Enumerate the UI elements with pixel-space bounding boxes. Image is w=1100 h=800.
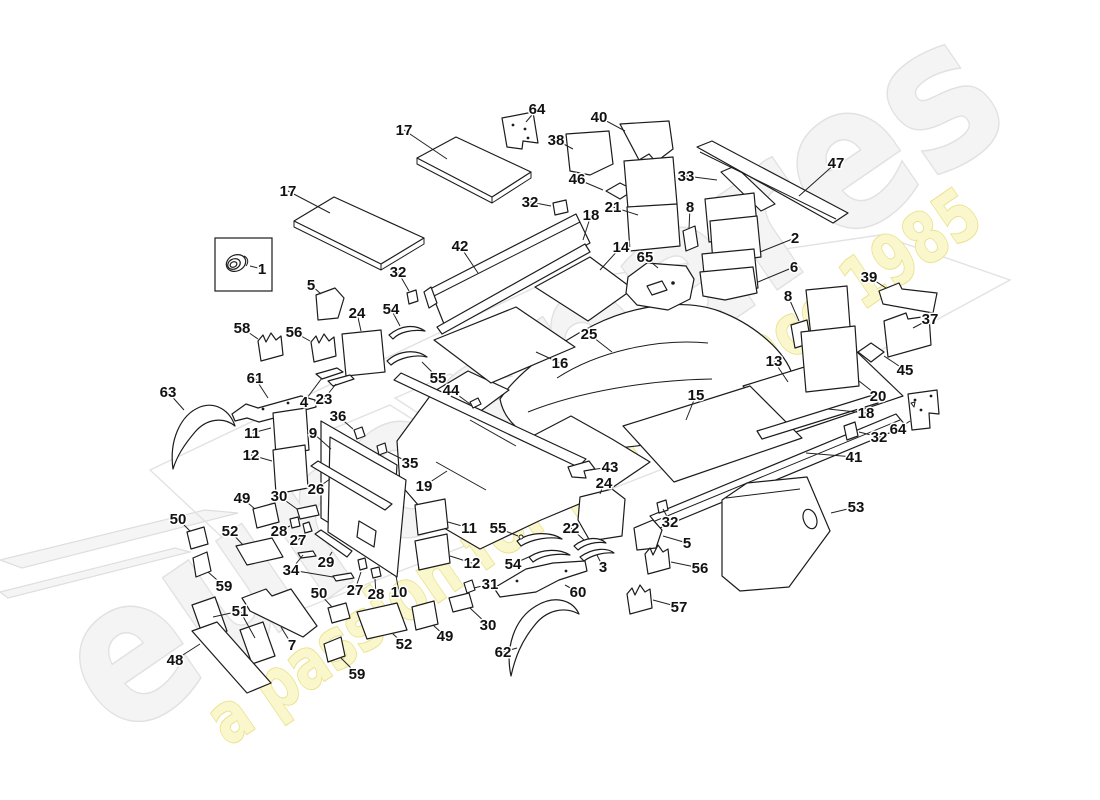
callout-58: 58 [234,320,258,339]
part-number-label: 32 [871,429,888,446]
part-number-label: 32 [662,514,679,531]
part-number-label: 9 [309,425,317,442]
part-24-panel-upper [342,330,385,376]
part-number-label: 27 [347,582,364,599]
part-22-strip [574,538,606,550]
part-12-pad-right [415,534,450,570]
part-number-label: 7 [288,637,296,654]
part-number-label: 5 [683,535,691,552]
part-number-label: 17 [280,183,297,200]
part-number-label: 51 [232,603,249,620]
part-number-label: 65 [637,249,654,266]
callout-60: 60 [565,584,586,601]
callout-32: 32 [522,194,551,211]
part-27-clip-lower [358,558,367,570]
part-number-label: 25 [581,326,598,343]
part-number-label: 58 [234,320,251,337]
part-number-label: 30 [271,488,288,505]
part-number-label: 17 [396,122,413,139]
part-32-clip-lower [657,500,668,513]
part-number-label: 46 [569,171,586,188]
callout-29: 29 [318,552,335,571]
part-6-panel [700,267,757,300]
part-number-label: 28 [271,523,288,540]
part-number-label: 62 [495,644,512,661]
part-number-label: 30 [480,617,497,634]
callout-27: 27 [290,532,307,549]
part-number-label: 64 [529,101,546,118]
part-number-label: 49 [234,490,251,507]
part-number-label: 11 [461,520,477,537]
part-57-clip [627,585,652,614]
callout-64: 64 [890,421,910,438]
callout-42: 42 [452,238,478,273]
part-number-label: 24 [596,475,613,492]
part-number-label: 27 [290,532,307,549]
callout-28: 28 [271,523,290,540]
part-number-label: 35 [402,455,419,472]
part-number-label: 40 [591,109,608,126]
callout-56: 56 [671,560,708,577]
part-number-label: 54 [383,301,400,318]
part-53-boot-panel [722,477,830,591]
callout-3: 3 [597,555,607,576]
part-number-label: 32 [522,194,539,211]
part-21-bulkhead-panels [624,157,680,251]
part-number-label: 5 [307,277,315,294]
part-number-label: 42 [452,238,469,255]
part-number-label: 22 [563,520,580,537]
callout-40: 40 [591,109,625,131]
part-number-label: 49 [437,628,454,645]
part-number-label: 12 [243,447,260,464]
callout-49: 49 [433,625,453,645]
part-number-label: 44 [443,382,460,399]
part-64-bracket-right [908,390,939,430]
part-number-label: 28 [368,586,385,603]
part-number-label: 24 [349,305,366,322]
part-number-label: 54 [505,556,522,573]
part-number-label: 4 [300,394,309,411]
part-number-label: 53 [848,499,865,516]
callout-32: 32 [390,264,409,291]
part-28-clip-lower [371,567,381,578]
part-number-label: 55 [490,520,507,537]
part-number-label: 23 [316,391,333,408]
part-62-wheelarch-liner [509,600,579,676]
part-number-label: 15 [688,387,705,404]
diagram-canvas: eurospares a passion for parts since 198… [0,0,1100,800]
callout-24: 24 [596,475,613,494]
part-number-label: 37 [922,311,939,328]
part-number-label: 47 [828,155,845,172]
part-number-label: 64 [890,421,907,438]
callout-5: 5 [307,277,321,294]
part-number-label: 43 [602,459,619,476]
part-number-label: 63 [160,384,177,401]
part-number-label: 14 [613,239,630,256]
part-24-panel-lower [578,489,625,541]
part-number-label: 48 [167,652,184,669]
part-number-label: 52 [396,636,413,653]
part-12-pad-left [273,445,308,494]
callout-54: 54 [383,301,400,326]
callout-61: 61 [247,370,268,398]
callout-17: 17 [396,122,447,159]
part-number-label: 52 [222,523,239,540]
callout-24: 24 [349,305,366,331]
part-11-pad-right [415,499,448,535]
part-number-label: 57 [671,599,688,616]
part-32-square-mid [407,290,418,304]
part-35-clip [377,443,387,455]
part-58-clip [258,333,283,361]
part-number-label: 20 [870,388,887,405]
part-number-label: 31 [482,576,499,593]
part-number-label: 50 [311,585,328,602]
part-number-label: 59 [349,666,366,683]
part-number-label: 8 [784,288,792,305]
part-number-label: 1 [258,261,266,278]
part-number-label: 50 [170,511,187,528]
part-number-label: 12 [464,555,481,572]
part-number-label: 60 [570,584,587,601]
callout-1: 1 [250,261,266,278]
part-number-label: 10 [391,584,408,601]
part-number-label: 19 [416,478,433,495]
part-number-label: 36 [330,408,347,425]
part-number-label: 45 [897,362,914,379]
part-number-label: 16 [552,355,569,372]
part-32-square-top [553,200,568,215]
part-number-label: 33 [678,168,695,185]
parts-diagram-page: eurospares a passion for parts since 198… [0,0,1100,800]
part-32-clip-right [844,422,858,440]
callout-53: 53 [831,499,864,516]
part-number-label: 38 [548,132,565,149]
callout-52: 52 [393,634,412,653]
part-17-shelf-panel-left [294,197,424,270]
part-38-panel [566,131,613,175]
part-number-label: 18 [858,405,875,422]
part-56-clip-upper [311,334,336,362]
callout-56: 56 [286,324,310,341]
part-number-label: 6 [790,259,798,276]
callout-63: 63 [160,384,184,410]
part-number-label: 56 [286,324,303,341]
part-number-label: 26 [308,481,325,498]
callout-64: 64 [526,101,546,122]
part-number-label: 18 [583,207,600,224]
part-number-label: 34 [283,562,300,579]
part-56-clip-lower [645,545,670,574]
part-number-label: 21 [605,199,622,216]
part-number-label: 29 [318,554,335,571]
part-number-label: 32 [390,264,407,281]
part-number-label: 2 [791,230,799,247]
callout-30: 30 [470,608,496,634]
callout-57: 57 [653,599,687,616]
part-number-label: 39 [861,269,878,286]
part-number-label: 59 [216,578,233,595]
part-28-clip-upper [290,517,300,528]
part-number-label: 13 [766,353,783,370]
part-number-label: 3 [599,559,607,576]
callout-17: 17 [280,183,330,213]
part-number-label: 11 [244,425,260,442]
part-number-label: 61 [247,370,264,387]
part-number-label: 8 [686,199,694,216]
part-number-label: 56 [692,560,709,577]
part-number-label: 41 [846,449,863,466]
callout-45: 45 [884,356,913,379]
part-8-clip-left [683,226,698,251]
